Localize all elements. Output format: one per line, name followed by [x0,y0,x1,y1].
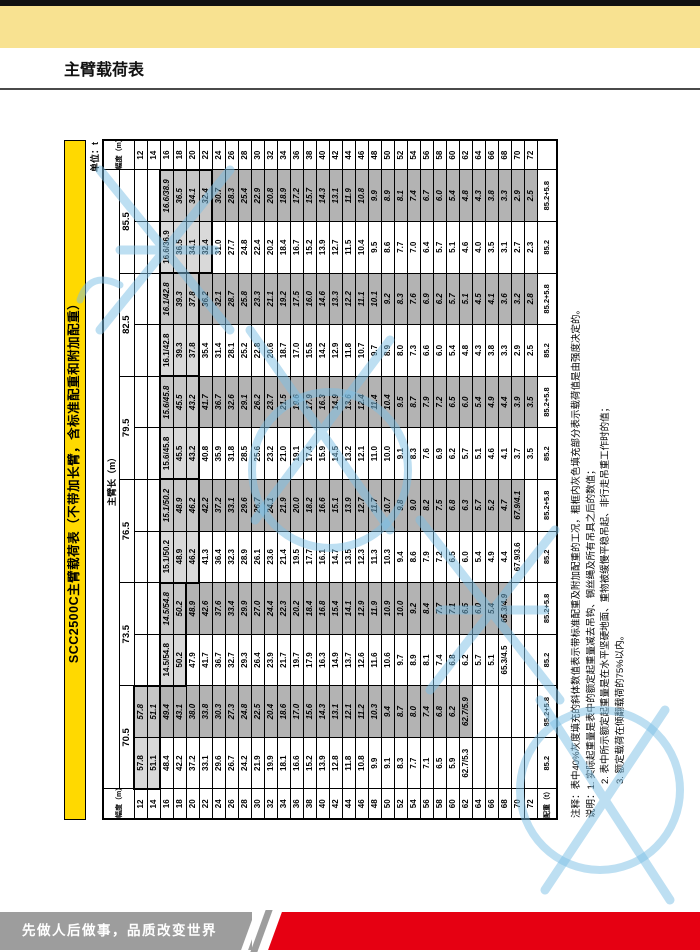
load-cell-std: 5.7 [472,634,485,686]
load-cell-std: 9.7 [394,634,407,686]
load-cell-std: 7.0 [407,221,420,273]
load-cell-add: 6.5 [459,583,472,635]
load-cell-std: 26.1 [251,531,264,583]
load-cell-std: 15.5 [303,325,316,377]
load-cell-add: 12.2 [342,273,355,325]
load-cell-std: 46.2 [186,531,199,583]
load-cell-std: 22.8 [251,325,264,377]
load-cell-std: 9.4 [394,531,407,583]
load-cell-std: 20.2 [264,221,277,273]
load-cell-std: 7.2 [433,531,446,583]
radius-cell: 44 [342,140,355,170]
load-cell-std: 8.1 [420,634,433,686]
load-cell-add: 3.5 [524,376,537,428]
load-cell-add: 20.0 [290,479,303,531]
load-cell-std: 21.7 [277,634,290,686]
load-cell-add: 17.5 [290,273,303,325]
load-cell-add: 15.7 [303,170,316,222]
load-cell-std: 16.1 [316,531,329,583]
table-row: 3815.215.617.918.417.718.217.417.915.516… [303,140,316,819]
counterweight-add: 85.2+5.8 [537,273,557,325]
load-cell-std: 13.9 [316,737,329,789]
load-cell-add: 14.3 [316,686,329,738]
load-cell-add: 29.6 [238,479,251,531]
load-cell-add: 8.2 [420,479,433,531]
radius-cell: 42 [329,789,342,819]
load-cell-std: 31.4 [212,325,225,377]
document-page: { "page": { "title": "主臂载荷表", "unit_labe… [0,0,700,950]
load-cell-std: 12.3 [355,531,368,583]
load-cell-std: 16.3 [316,634,329,686]
load-cell-add: 12.4 [355,376,368,428]
load-cell-std: 67.9/3.6 [511,531,524,583]
load-cell-std: 50.2 [173,634,186,686]
load-cell-add: 42.2 [199,479,212,531]
table-row: 7067.9/3.667.9/4.13.73.92.93.22.72.970 [511,140,524,819]
load-cell-add: 10.1 [368,273,381,325]
load-cell-add [511,583,524,635]
load-cell-add: 8.4 [420,583,433,635]
load-cell-std: 6.5 [433,737,446,789]
load-cell-add: 21.1 [264,273,277,325]
load-cell-std: 51.1 [147,737,160,789]
footer-bar: 先做人后做事，品质改变世界 [0,912,700,950]
load-cell-add: 48.9 [186,583,199,635]
load-cell-std: 32.4 [199,221,212,273]
load-cell-add [498,686,511,738]
load-cell-add: 15.1 [329,479,342,531]
radius-cell: 24 [212,140,225,170]
radius-header-right: 幅度（m） [103,140,134,170]
load-cell-add [147,479,160,531]
load-cell-std: 9.1 [381,737,394,789]
notes-block: 注释：表中40%灰度填充的斜体数值表示带标准配重及附加配重的工况，粗框内灰色填充… [570,142,628,818]
load-cell-std: 6.9 [433,428,446,480]
load-cell-add: 5.4 [446,170,459,222]
load-cell-add: 13.1 [329,686,342,738]
radius-cell: 58 [433,789,446,819]
load-cell-std: 7.7 [394,221,407,273]
page-title: 主臂载荷表 [64,56,144,80]
load-cell-add: 15.6 [303,686,316,738]
radius-cell: 16 [160,789,173,819]
load-cell-std: 17.9 [303,634,316,686]
radius-cell: 48 [368,140,381,170]
rotated-chart-block: SCC2500C主臂载荷表（不带加长臂，含标准配重和附加配重） 单位：t 幅度（… [64,140,660,820]
load-cell-std: 37.2 [186,737,199,789]
load-cell-std: 12.7 [329,221,342,273]
load-cell-add: 7.7 [433,583,446,635]
boom-length: 79.5 [119,376,134,479]
load-cell-add [524,479,537,531]
load-cell-std: 62.7/5.3 [459,737,472,789]
load-cell-add: 45.5 [173,376,186,428]
load-cell-add: 4.9 [485,376,498,428]
load-cell-std: 19.7 [290,634,303,686]
load-cell-add: 26.7 [251,479,264,531]
counterweight-std: 85.2 [537,634,557,686]
load-cell-add: 19.6 [290,376,303,428]
load-cell-std [134,221,147,273]
load-cell-add: 50.2 [173,583,186,635]
counterweight-add: 85.2+5.8 [537,376,557,428]
load-cell-add: 4.8 [459,170,472,222]
load-cell-std: 15.1/50.2 [160,531,173,583]
top-yellow-band [0,6,700,48]
radius-cell: 72 [524,140,537,170]
table-row: 723.53.52.52.82.32.572 [524,140,537,819]
load-cell-add: 5.4 [472,376,485,428]
table-row: 528.38.79.710.09.49.89.19.58.08.37.78.15… [394,140,407,819]
table-row: 509.19.410.610.910.310.710.010.48.99.28.… [381,140,394,819]
load-cell-std [511,634,524,686]
load-cell-add: 12.1 [342,686,355,738]
load-cell-add: 4.5 [472,273,485,325]
load-cell-add: 17.0 [290,686,303,738]
load-cell-add: 14.5/54.8 [160,583,173,635]
load-cell-add: 15.1/50.2 [160,479,173,531]
load-cell-std [498,737,511,789]
radius-cell: 22 [199,140,212,170]
load-cell-std: 4.3 [472,325,485,377]
load-cell-add: 13.3 [329,273,342,325]
load-cell-add: 6.0 [459,376,472,428]
table-row: 2037.238.047.948.946.246.243.243.237.837… [186,140,199,819]
load-cell-std: 8.6 [381,221,394,273]
load-cell-add: 7.1 [446,583,459,635]
boom-length-header: 主臂长（m） [103,170,119,789]
load-cell-add [472,686,485,738]
load-cell-std: 24.8 [238,221,251,273]
load-cell-std: 17.7 [303,531,316,583]
load-cell-add: 36.5 [173,170,186,222]
counterweight-add: 85.2+5.8 [537,170,557,222]
load-cell-add: 20.8 [264,170,277,222]
counterweight-add: 85.2+5.8 [537,479,557,531]
table-row: 2626.727.332.733.432.333.131.832.628.128… [225,140,238,819]
load-cell-std: 16.6/36.9 [160,221,173,273]
load-cell-std [134,325,147,377]
radius-cell: 64 [472,789,485,819]
load-cell-std: 5.1 [446,221,459,273]
load-cell-add: 8.7 [394,686,407,738]
load-cell-add: 17.9 [303,376,316,428]
radius-cell: 64 [472,140,485,170]
load-cell-std: 48.9 [173,531,186,583]
load-cell-std: 9.7 [368,325,381,377]
load-cell-std [472,737,485,789]
radius-cell: 26 [225,140,238,170]
counterweight-std: 85.2 [537,531,557,583]
load-cell-add [147,170,160,222]
counterweight-add: 85.2+5.8 [537,686,557,738]
load-cell-add: 29.1 [238,376,251,428]
load-cell-add: 9.9 [368,170,381,222]
load-cell-std: 3.3 [498,325,511,377]
load-cell-add [134,583,147,635]
load-cell-add [511,686,524,738]
radius-cell: 14 [147,789,160,819]
load-cell-std: 29.6 [212,737,225,789]
load-cell-std: 20.6 [264,325,277,377]
load-cell-std: 5.1 [472,428,485,480]
load-cell-add: 11.1 [355,273,368,325]
load-cell-add: 26.2 [251,376,264,428]
table-row: 6865.3/4.565.3/4.94.44.74.14.43.33.63.13… [498,140,511,819]
load-cell-add: 11.9 [342,170,355,222]
load-cell-add: 38.0 [186,686,199,738]
load-cell-add: 3.2 [511,273,524,325]
load-cell-add: 57.8 [134,686,147,738]
load-cell-add: 10.3 [368,686,381,738]
load-cell-std: 14.7 [329,531,342,583]
load-cell-std: 19.5 [290,531,303,583]
load-cell-std: 40.8 [199,428,212,480]
load-cell-std: 23.2 [264,428,277,480]
table-row: 2429.630.336.737.636.437.235.936.731.432… [212,140,225,819]
load-cell-add: 48.9 [173,479,186,531]
load-cell-std: 14.5/54.8 [160,634,173,686]
load-cell-std: 7.3 [407,325,420,377]
load-cell-add: 9.2 [381,273,394,325]
load-cell-std: 12.6 [355,634,368,686]
load-cell-std: 4.6 [485,428,498,480]
load-cell-std: 6.0 [433,325,446,377]
load-cell-add: 62.7/5.9 [459,686,472,738]
load-cell-add: 16.6/38.9 [160,170,173,222]
load-cell-std: 21.9 [251,737,264,789]
load-cell-std: 6.2 [446,428,459,480]
load-cell-add: 23.3 [251,273,264,325]
load-cell-add: 9.0 [407,479,420,531]
load-cell-std: 7.7 [407,737,420,789]
load-cell-add [134,273,147,325]
table-row: 3418.118.621.722.321.421.921.021.518.719… [277,140,290,819]
load-cell-std: 6.8 [446,634,459,686]
load-cell-std: 27.7 [225,221,238,273]
load-cell-std: 7.9 [420,531,433,583]
radius-cell: 36 [290,140,303,170]
load-cell-add: 2.9 [511,170,524,222]
load-cell-add [134,170,147,222]
load-cell-add: 30.3 [212,686,225,738]
load-cell-std [134,531,147,583]
boom-length: 76.5 [119,479,134,582]
load-cell-std: 4.4 [498,531,511,583]
radius-cell: 40 [316,789,329,819]
load-cell-add: 23.7 [264,376,277,428]
counterweight-label: 配重（t） [537,789,557,819]
load-cell-std: 9.9 [368,737,381,789]
load-cell-std: 2.9 [511,325,524,377]
note-line: 2. 表中所示额定起重量是在水平坚硬地面、重物被缓慢平稳吊起、非行走吊重工作时的… [599,142,614,818]
load-cell-std: 3.8 [485,325,498,377]
load-cell-std: 14.9 [329,634,342,686]
radius-cell: 18 [173,789,186,819]
load-cell-add: 6.5 [446,376,459,428]
table-row: 3219.920.423.924.423.624.123.223.720.621… [264,140,277,819]
load-cell-std: 9.5 [368,221,381,273]
load-cell-std: 19.9 [264,737,277,789]
load-cell-add [147,583,160,635]
load-cell-add: 21.5 [277,376,290,428]
load-cell-add: 37.2 [212,479,225,531]
load-cell-std: 8.3 [394,737,407,789]
load-cell-add: 24.8 [238,686,251,738]
load-cell-add: 6.0 [472,583,485,635]
load-cell-add: 13.6 [342,376,355,428]
load-cell-std: 6.2 [459,634,472,686]
load-cell-std: 33.1 [199,737,212,789]
load-cell-std: 15.6/45.8 [160,428,173,480]
load-cell-add: 6.7 [420,170,433,222]
load-cell-std: 4.0 [472,221,485,273]
radius-cell: 34 [277,789,290,819]
radius-cell: 20 [186,140,199,170]
load-cell-std: 23.6 [264,531,277,583]
corner-cell [537,140,557,170]
load-cell-add: 7.4 [407,170,420,222]
boom-length: 73.5 [119,583,134,686]
table-row: 4610.811.212.612.912.312.712.112.410.711… [355,140,368,819]
load-cell-add: 27.3 [225,686,238,738]
load-cell-std: 17.4 [303,428,316,480]
load-cell-std: 8.9 [407,634,420,686]
load-cell-add: 46.2 [186,479,199,531]
title-divider [0,88,700,90]
load-cell-add [485,686,498,738]
table-row: 4411.812.113.714.113.513.913.213.611.812… [342,140,355,819]
table-row: 6262.7/5.362.7/5.96.26.56.06.35.76.04.85… [459,140,472,819]
load-cell-std: 13.9 [316,221,329,273]
load-cell-add: 6.2 [433,273,446,325]
radius-cell: 70 [511,789,524,819]
load-cell-add [147,376,160,428]
load-cell-add: 15.6/45.8 [160,376,173,428]
load-cell-std: 32.3 [225,531,238,583]
load-cell-add: 8.3 [394,273,407,325]
load-cell-add: 8.9 [381,170,394,222]
load-cell-std: 4.6 [459,221,472,273]
load-cell-std: 18.1 [277,737,290,789]
load-cell-std [511,737,524,789]
load-cell-std: 45.5 [173,428,186,480]
load-cell-add: 3.9 [511,376,524,428]
load-cell-add: 5.4 [485,583,498,635]
load-cell-add: 16.0 [303,273,316,325]
radius-cell: 54 [407,789,420,819]
radius-cell: 68 [498,140,511,170]
boom-length: 82.5 [119,273,134,376]
radius-cell: 60 [446,140,459,170]
load-cell-add: 16.8 [316,583,329,635]
counterweight-std: 85.2 [537,428,557,480]
load-cell-std: 4.8 [459,325,472,377]
load-cell-std: 22.4 [251,221,264,273]
radius-cell: 20 [186,789,199,819]
load-cell-std: 15.2 [303,221,316,273]
load-cell-std [147,325,160,377]
load-cell-add: 18.2 [303,479,316,531]
boom-length: 70.5 [119,686,134,789]
radius-cell: 32 [264,140,277,170]
load-cell-add: 30.7 [212,170,225,222]
load-cell-std: 37.8 [186,325,199,377]
load-cell-std: 10.6 [381,634,394,686]
table-row: 4013.914.316.316.816.116.615.916.314.214… [316,140,329,819]
load-cell-add: 11.7 [368,479,381,531]
table-row: 586.56.87.47.77.27.56.97.26.06.25.76.058 [433,140,446,819]
load-cell-std [134,428,147,480]
radius-cell: 56 [420,140,433,170]
load-cell-add: 3.6 [498,273,511,325]
load-cell-add: 42.6 [199,583,212,635]
table-row: 2233.133.841.742.641.342.240.841.735.436… [199,140,212,819]
load-cell-add: 7.4 [420,686,433,738]
load-cell-std: 5.9 [446,737,459,789]
load-cell-add [147,273,160,325]
load-cell-add: 51.1 [147,686,160,738]
load-cell-std: 14.2 [316,325,329,377]
table-row: 1451.151.114 [147,140,160,819]
load-cell-add: 9.4 [381,686,394,738]
load-cell-std: 10.0 [381,428,394,480]
load-cell-std [524,737,537,789]
load-cell-add [134,479,147,531]
table-row: 547.78.08.99.28.69.08.38.77.37.67.07.454 [407,140,420,819]
radius-cell: 58 [433,140,446,170]
table-row: 3616.617.019.720.219.520.019.119.617.017… [290,140,303,819]
load-cell-std: 8.3 [407,428,420,480]
radius-cell: 66 [485,789,498,819]
load-cell-add: 34.1 [186,170,199,222]
table-row: 1257.857.812 [134,140,147,819]
load-cell-std: 21.4 [277,531,290,583]
load-cell-std: 10.4 [355,221,368,273]
load-cell-std: 13.7 [342,634,355,686]
load-cell-add: 28.7 [225,273,238,325]
load-cell-std: 47.9 [186,634,199,686]
load-cell-add: 14.1 [342,583,355,635]
load-cell-std: 34.1 [186,221,199,273]
load-cell-std: 19.1 [290,428,303,480]
load-cell-add: 67.9/4.1 [511,479,524,531]
radius-cell: 22 [199,789,212,819]
radius-cell: 60 [446,789,459,819]
load-chart: 幅度（m）主臂长（m）幅度（m）70.573.576.579.582.585.5… [102,139,558,820]
load-cell-std: 6.5 [446,531,459,583]
load-cell-add: 2.8 [524,273,537,325]
load-cell-add: 6.2 [446,686,459,738]
load-cell-std: 57.8 [134,737,147,789]
load-cell-std: 6.6 [420,325,433,377]
radius-cell: 38 [303,789,316,819]
radius-cell: 72 [524,789,537,819]
table-row: 1842.243.150.250.248.948.945.545.539.339… [173,140,186,819]
load-cell-std [147,221,160,273]
radius-cell: 52 [394,789,407,819]
table-row: 567.17.48.18.47.98.27.67.96.66.96.46.756 [420,140,433,819]
load-cell-add: 28.3 [225,170,238,222]
note-line: 注释：表中40%灰度填充的斜体数值表示带标准配重及附加配重的工况，粗框内灰色填充… [570,142,585,818]
load-cell-std: 11.8 [342,325,355,377]
load-cell-add: 22.9 [251,170,264,222]
load-cell-add: 16.6 [316,479,329,531]
counterweight-add: 85.2+5.8 [537,583,557,635]
load-cell-std: 13.2 [342,428,355,480]
load-cell-std: 15.9 [316,428,329,480]
load-cell-add: 16.3 [316,376,329,428]
